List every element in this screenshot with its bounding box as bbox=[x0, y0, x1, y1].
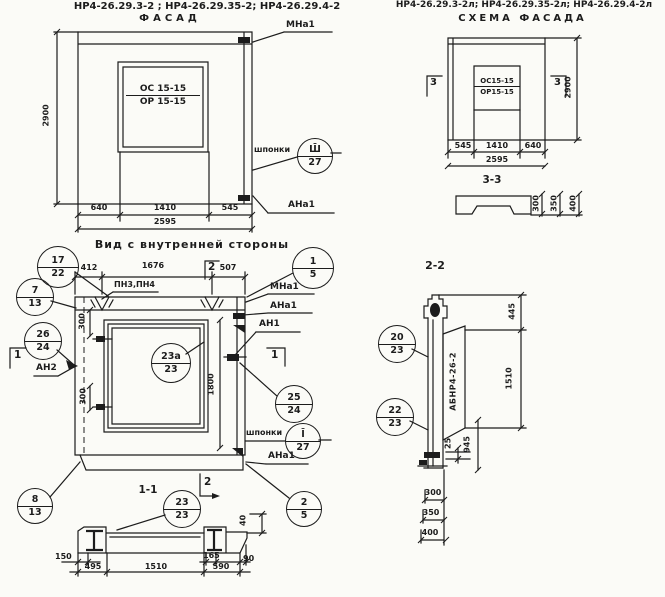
callout-20-23: 20 23 bbox=[378, 325, 416, 363]
inner-label-an2: АН2 bbox=[36, 364, 57, 374]
callout-bottom-number: 13 bbox=[18, 507, 52, 524]
section-marker-2-bottom: 2 bbox=[204, 477, 211, 489]
facade-dim-640: 640 bbox=[85, 204, 113, 213]
technical-drawing-sheet: НР4-26.29.3-2 ; НР4-26.29.35-2; НР4-26.2… bbox=[0, 0, 665, 597]
section-2-2-label: 2-2 bbox=[419, 260, 451, 272]
callout-1-27: Ī 27 bbox=[285, 423, 321, 459]
scheme-codes-title: НР4-26.29.3-2л; НР4-26.29.35-2л; НР4-26.… bbox=[383, 1, 665, 11]
dim-11-495: 495 bbox=[81, 563, 105, 572]
scheme-title: СХЕМА ФАСАДА bbox=[430, 13, 615, 24]
callout-bottom-number: 23 bbox=[379, 345, 415, 363]
callout-bottom-number: 5 bbox=[287, 510, 321, 527]
callout-7-13: 7 13 bbox=[16, 278, 54, 316]
dim-11-150: 150 bbox=[55, 553, 72, 562]
callout-8-13: 8 13 bbox=[17, 488, 53, 524]
callout-top-number: 2 bbox=[287, 492, 321, 510]
window-mark-top: ОС15-15 bbox=[474, 77, 520, 87]
callout-top-number: 25 bbox=[276, 386, 312, 405]
callout-top-number: 26 bbox=[25, 323, 61, 342]
section-1-1-label: 1-1 bbox=[129, 485, 167, 497]
section-3-3-label: 3-3 bbox=[470, 175, 514, 187]
dim-11-165: 165 bbox=[203, 552, 220, 561]
facade-dim-545: 545 bbox=[216, 204, 244, 213]
panel-plate-label: АБНР4-26-2 bbox=[450, 339, 459, 423]
callout-bottom-number: 24 bbox=[25, 342, 61, 360]
callout-bottom-number: 23 bbox=[164, 510, 200, 528]
scheme-dim-height: 2900 bbox=[565, 72, 574, 102]
section-marker-2-top: 2 bbox=[208, 262, 215, 274]
facade-codes-title: НР4-26.29.3-2 ; НР4-26.29.35-2; НР4-26.2… bbox=[42, 1, 372, 12]
dim-22-1510: 1510 bbox=[506, 361, 515, 395]
dim-11-40: 40 bbox=[240, 507, 249, 533]
scheme-dim-640: 640 bbox=[519, 142, 547, 151]
dim-22-300: 300 bbox=[421, 489, 445, 498]
callout-bottom-number: 5 bbox=[293, 269, 333, 289]
scheme-window-mark: ОС15-15 ОР15-15 bbox=[474, 77, 520, 96]
callout-22-23: 22 23 bbox=[376, 398, 414, 436]
callout-top-number: 23 bbox=[164, 491, 200, 510]
section-marker-1-left: 1 bbox=[14, 350, 21, 362]
window-mark-bottom: ОР 15-15 bbox=[126, 96, 200, 107]
callout-23-23: 23 23 bbox=[163, 490, 201, 528]
callout-top-number: 23а bbox=[152, 344, 190, 364]
section-marker-3-right: 3 bbox=[554, 77, 561, 88]
dim-11-590: 590 bbox=[207, 563, 235, 572]
callout-top-number: Ī bbox=[286, 424, 320, 442]
callout-2-5: 2 5 bbox=[286, 491, 322, 527]
inner-dim-507: 507 bbox=[215, 264, 241, 273]
facade-label-shponki: шпонки bbox=[254, 146, 290, 155]
inner-dim-1676: 1676 bbox=[136, 262, 170, 271]
dim-11-1510: 1510 bbox=[139, 563, 173, 572]
inner-dim-300-bottom: 300 bbox=[80, 383, 89, 409]
section-marker-3-left: 3 bbox=[430, 77, 437, 88]
callout-shponki-27: Ш̄ 27 bbox=[297, 138, 333, 174]
inner-dim-1800: 1800 bbox=[208, 367, 217, 401]
callout-bottom-number: 23 bbox=[377, 418, 413, 436]
callout-1-5: 1 5 bbox=[292, 247, 334, 289]
inner-view-title: Вид с внутренней стороны bbox=[78, 239, 306, 251]
callout-top-number: 8 bbox=[18, 489, 52, 507]
callout-top-number: 7 bbox=[17, 279, 53, 298]
callout-bottom-number: 27 bbox=[298, 157, 332, 174]
callout-26-24: 26 24 bbox=[24, 322, 62, 360]
callout-bottom-number: 13 bbox=[17, 298, 53, 316]
facade-label-ana1: АНа1 bbox=[288, 201, 315, 211]
inner-label-shponki: шпонки bbox=[246, 429, 282, 438]
inner-label-ana1: АНа1 bbox=[270, 302, 297, 312]
scheme-dim-545: 545 bbox=[450, 142, 476, 151]
dim-22-945: 945 bbox=[464, 431, 473, 457]
facade-label-mna1: МНа1 bbox=[286, 21, 315, 31]
callout-23a-23: 23а 23 bbox=[151, 343, 191, 383]
dim-22-445: 445 bbox=[509, 298, 518, 324]
dim-22-350: 350 bbox=[419, 509, 443, 518]
callout-25-24: 25 24 bbox=[275, 385, 313, 423]
window-mark-top: ОС 15-15 bbox=[126, 84, 200, 96]
callout-top-number: 1 bbox=[293, 248, 333, 269]
callout-bottom-number: 27 bbox=[286, 442, 320, 459]
callout-bottom-number: 24 bbox=[276, 405, 312, 423]
scheme-dim-total: 2595 bbox=[479, 156, 515, 165]
callout-top-number: 20 bbox=[379, 326, 415, 345]
label-pn3-pn4: ПН3,ПН4 bbox=[114, 281, 155, 290]
facade-dim-total: 2595 bbox=[147, 218, 183, 227]
inner-label-an1: АН1 bbox=[259, 320, 280, 330]
facade-dim-1410: 1410 bbox=[148, 204, 182, 213]
facade-dim-height: 2900 bbox=[43, 100, 52, 130]
facade-title: ФАСАД bbox=[95, 13, 245, 24]
inner-dim-300-top: 300 bbox=[79, 308, 88, 334]
window-mark-bottom: ОР15-15 bbox=[474, 87, 520, 96]
callout-top-number: 17 bbox=[38, 247, 78, 268]
dim-33-400: 400 bbox=[570, 190, 579, 216]
dim-11-90: 90 bbox=[243, 555, 254, 564]
callout-top-number: 22 bbox=[377, 399, 413, 418]
dim-22-400: 400 bbox=[417, 529, 443, 538]
dim-33-350: 350 bbox=[551, 190, 560, 216]
scheme-dim-1410: 1410 bbox=[479, 142, 515, 151]
callout-bottom-number: 23 bbox=[152, 364, 190, 383]
section-marker-1-right: 1 bbox=[271, 350, 278, 362]
callout-top-number: Ш̄ bbox=[298, 139, 332, 157]
dim-22-25: 25 bbox=[445, 432, 454, 454]
inner-dim-412: 412 bbox=[76, 264, 102, 273]
dim-33-300: 300 bbox=[533, 190, 542, 216]
facade-window-mark: ОС 15-15 ОР 15-15 bbox=[126, 84, 200, 107]
